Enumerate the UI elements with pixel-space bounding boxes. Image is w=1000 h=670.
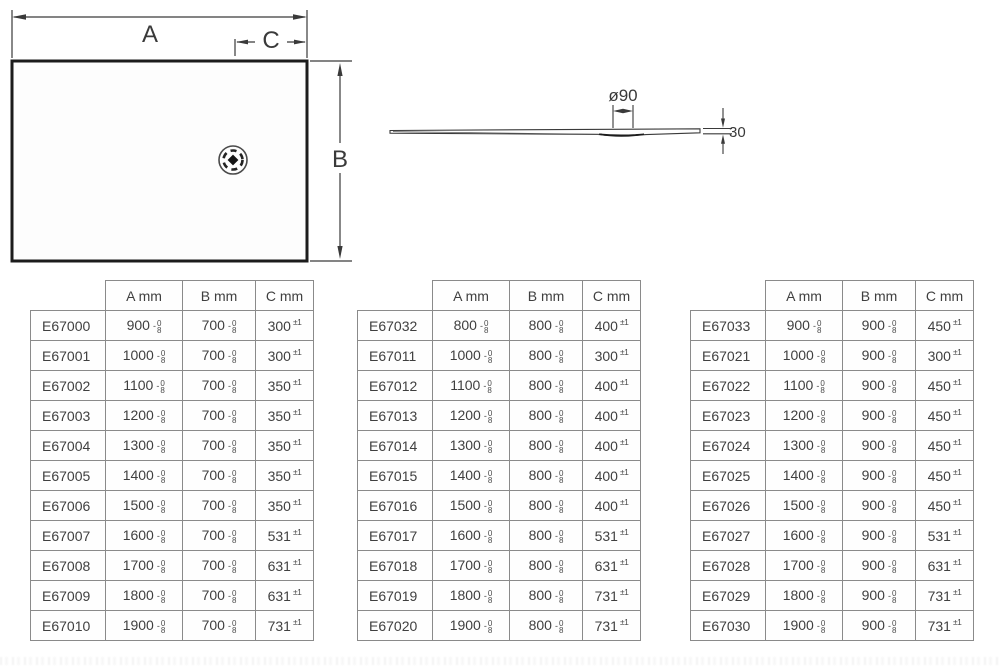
tolerance-ab: -08 [156, 380, 164, 394]
table-row: E670161500-08800-08400±1 [358, 491, 641, 521]
dim-c-cell: 400±1 [583, 431, 641, 461]
dim-c-cell: 450±1 [916, 431, 974, 461]
tolerance-ab: -08 [817, 560, 825, 574]
table-row: E670101900-08700-08731±1 [31, 611, 314, 641]
tolerance-ab: -08 [817, 530, 825, 544]
plan-view-drawing: A C B [0, 0, 370, 270]
table-row: E670031200-08700-08350±1 [31, 401, 314, 431]
tolerance-c: ±1 [293, 587, 301, 597]
dim-c-cell: 300±1 [916, 341, 974, 371]
table-row: E670041300-08700-08350±1 [31, 431, 314, 461]
tolerance-ab: -08 [816, 380, 824, 394]
dim-a-cell: 1500-08 [766, 491, 843, 521]
table-row: E670201900-08800-08731±1 [358, 611, 641, 641]
tolerance-ab: -08 [228, 530, 236, 544]
tolerance-ab: -08 [157, 410, 165, 424]
product-code-cell: E67016 [358, 491, 433, 521]
tolerance-ab: -08 [888, 470, 896, 484]
dim-c-cell: 350±1 [256, 461, 314, 491]
dim-b-cell: 700-08 [183, 431, 256, 461]
tolerance-ab: -08 [228, 560, 236, 574]
dim-b-cell: 900-08 [843, 401, 916, 431]
product-code-cell: E67006 [31, 491, 106, 521]
dim-b-cell: 700-08 [183, 401, 256, 431]
column-header-a: A mm [433, 281, 510, 311]
tolerance-ab: -08 [888, 440, 896, 454]
dim-b-cell: 800-08 [510, 461, 583, 491]
tolerance-c: ±1 [620, 497, 628, 507]
dim-c-cell: 631±1 [256, 581, 314, 611]
dim-b-cell: 900-08 [843, 311, 916, 341]
product-code-cell: E67002 [31, 371, 106, 401]
dim-c-cell: 450±1 [916, 401, 974, 431]
dim-c-cell: 450±1 [916, 371, 974, 401]
column-header-b: B mm [183, 281, 256, 311]
column-header-a: A mm [106, 281, 183, 311]
column-header-a: A mm [766, 281, 843, 311]
tolerance-ab: -08 [888, 560, 896, 574]
tolerance-ab: -08 [228, 380, 236, 394]
tolerance-ab: -08 [817, 410, 825, 424]
header-blank-cell [31, 281, 106, 311]
dim-b-cell: 900-08 [843, 461, 916, 491]
header-blank-cell [358, 281, 433, 311]
column-header-b: B mm [510, 281, 583, 311]
tolerance-ab: -08 [228, 620, 236, 634]
tolerance-c: ±1 [293, 557, 301, 567]
tolerance-ab: -08 [555, 530, 563, 544]
dim-b-cell: 900-08 [843, 371, 916, 401]
dim-b-cell: 700-08 [183, 311, 256, 341]
tolerance-ab: -08 [157, 470, 165, 484]
tolerance-ab: -08 [817, 620, 825, 634]
product-code-cell: E67000 [31, 311, 106, 341]
table-row: E670061500-08700-08350±1 [31, 491, 314, 521]
tolerance-ab: -08 [228, 320, 236, 334]
product-code-cell: E67025 [691, 461, 766, 491]
dim-a-cell: 1400-08 [106, 461, 183, 491]
tolerance-ab: -08 [555, 380, 563, 394]
tolerance-ab: -08 [484, 530, 492, 544]
tolerance-c: ±1 [620, 407, 628, 417]
dim-a-cell: 1600-08 [106, 521, 183, 551]
tolerance-ab: -08 [228, 350, 236, 364]
tolerance-c: ±1 [293, 437, 301, 447]
arrow-up-icon [721, 135, 725, 144]
table-row: E670181700-08800-08631±1 [358, 551, 641, 581]
dim-a-cell: 1500-08 [106, 491, 183, 521]
tolerance-c: ±1 [620, 377, 628, 387]
tolerance-ab: -08 [817, 350, 825, 364]
dim-a-cell: 1200-08 [106, 401, 183, 431]
dim-a-cell: 1500-08 [433, 491, 510, 521]
dim-a-cell: 1300-08 [433, 431, 510, 461]
tray-outline [12, 61, 307, 261]
dim-c-cell: 731±1 [256, 611, 314, 641]
dimension-diameter [613, 105, 633, 128]
table-row: E67032800-08800-08400±1 [358, 311, 641, 341]
table-row: E670301900-08900-08731±1 [691, 611, 974, 641]
spec-table-900-series: A mmB mmC mmE67033900-08900-08450±1E6702… [690, 280, 974, 641]
tolerance-ab: -08 [817, 470, 825, 484]
tolerance-c: ±1 [953, 557, 961, 567]
dim-a-cell: 1000-08 [766, 341, 843, 371]
tolerance-c: ±1 [620, 317, 628, 327]
dim-a-cell: 1700-08 [766, 551, 843, 581]
dim-c-cell: 400±1 [583, 491, 641, 521]
dim-a-cell: 1600-08 [766, 521, 843, 551]
dimension-c-label: C [262, 27, 279, 54]
tolerance-ab: -08 [484, 620, 492, 634]
product-code-cell: E67023 [691, 401, 766, 431]
table-row: E67000900-08700-08300±1 [31, 311, 314, 341]
table-row: E670011000-08700-08300±1 [31, 341, 314, 371]
product-code-cell: E67020 [358, 611, 433, 641]
product-code-cell: E67033 [691, 311, 766, 341]
dim-c-cell: 400±1 [583, 461, 641, 491]
dim-b-cell: 700-08 [183, 371, 256, 401]
dim-b-cell: 900-08 [843, 341, 916, 371]
table-row: E670091800-08700-08631±1 [31, 581, 314, 611]
tolerance-c: ±1 [620, 617, 628, 627]
tolerance-c: ±1 [620, 347, 628, 357]
product-code-cell: E67030 [691, 611, 766, 641]
arrow-left-icon [236, 40, 248, 45]
tolerance-ab: -08 [484, 560, 492, 574]
dim-c-cell: 350±1 [256, 431, 314, 461]
product-code-cell: E67032 [358, 311, 433, 341]
dim-a-cell: 1200-08 [433, 401, 510, 431]
dim-a-cell: 1900-08 [106, 611, 183, 641]
table-row: E670291800-08900-08731±1 [691, 581, 974, 611]
tolerance-ab: -08 [555, 320, 563, 334]
dim-c-cell: 400±1 [583, 311, 641, 341]
tolerance-ab: -08 [157, 590, 165, 604]
dim-a-cell: 1100-08 [766, 371, 843, 401]
dim-a-cell: 1600-08 [433, 521, 510, 551]
tolerance-c: ±1 [953, 587, 961, 597]
table-row: E670131200-08800-08400±1 [358, 401, 641, 431]
dimension-b-label: B [332, 146, 348, 173]
tolerance-c: ±1 [953, 497, 961, 507]
tolerance-ab: -08 [888, 410, 896, 424]
product-code-cell: E67008 [31, 551, 106, 581]
tolerance-ab: -08 [484, 440, 492, 454]
tolerance-ab: -08 [555, 560, 563, 574]
dim-c-cell: 631±1 [256, 551, 314, 581]
tolerance-c: ±1 [293, 407, 301, 417]
dim-b-cell: 800-08 [510, 431, 583, 461]
table-row: E670231200-08900-08450±1 [691, 401, 974, 431]
dim-c-cell: 350±1 [256, 401, 314, 431]
table-row: E670211000-08900-08300±1 [691, 341, 974, 371]
dim-b-cell: 800-08 [510, 521, 583, 551]
dim-c-cell: 531±1 [916, 521, 974, 551]
tolerance-ab: -08 [555, 500, 563, 514]
tolerance-ab: -08 [888, 590, 896, 604]
dim-b-cell: 800-08 [510, 311, 583, 341]
dim-b-cell: 800-08 [510, 341, 583, 371]
dim-c-cell: 400±1 [583, 401, 641, 431]
dim-a-cell: 1300-08 [766, 431, 843, 461]
product-code-cell: E67001 [31, 341, 106, 371]
arrow-up-icon [337, 63, 342, 76]
dim-b-cell: 800-08 [510, 491, 583, 521]
product-code-cell: E67011 [358, 341, 433, 371]
tolerance-ab: -08 [484, 500, 492, 514]
dim-b-cell: 700-08 [183, 521, 256, 551]
dim-a-cell: 1900-08 [433, 611, 510, 641]
tolerance-ab: -08 [555, 410, 563, 424]
dim-a-cell: 1800-08 [106, 581, 183, 611]
product-code-cell: E67005 [31, 461, 106, 491]
dim-c-cell: 531±1 [583, 521, 641, 551]
dim-a-cell: 1800-08 [766, 581, 843, 611]
header-blank-cell [691, 281, 766, 311]
dim-a-cell: 900-08 [766, 311, 843, 341]
arrow-right-icon [294, 40, 306, 45]
tolerance-ab: -08 [817, 440, 825, 454]
table-row: E670021100-08700-08350±1 [31, 371, 314, 401]
product-code-cell: E67028 [691, 551, 766, 581]
profile-view-drawing: ø90 30 [380, 60, 790, 180]
tolerance-ab: -08 [157, 530, 165, 544]
tolerance-c: ±1 [953, 347, 961, 357]
product-code-cell: E67012 [358, 371, 433, 401]
tolerance-ab: -08 [484, 590, 492, 604]
tolerance-ab: -08 [157, 620, 165, 634]
dim-c-cell: 300±1 [256, 341, 314, 371]
product-code-cell: E67022 [691, 371, 766, 401]
tolerance-ab: -08 [228, 500, 236, 514]
table-row: E670251400-08900-08450±1 [691, 461, 974, 491]
arrow-left-icon [613, 109, 623, 113]
tolerance-c: ±1 [953, 527, 961, 537]
dim-a-cell: 800-08 [433, 311, 510, 341]
column-header-c: C mm [583, 281, 641, 311]
dim-c-cell: 531±1 [256, 521, 314, 551]
dim-a-cell: 1800-08 [433, 581, 510, 611]
tolerance-c: ±1 [293, 317, 301, 327]
tolerance-ab: -08 [888, 380, 896, 394]
product-code-cell: E67018 [358, 551, 433, 581]
spec-table-700-series: A mmB mmC mmE67000900-08700-08300±1E6700… [30, 280, 314, 641]
table-row: E670121100-08800-08400±1 [358, 371, 641, 401]
product-code-cell: E67015 [358, 461, 433, 491]
table-row: E670241300-08900-08450±1 [691, 431, 974, 461]
tolerance-ab: -08 [555, 620, 563, 634]
column-header-b: B mm [843, 281, 916, 311]
table-row: E670261500-08900-08450±1 [691, 491, 974, 521]
dim-a-cell: 1700-08 [433, 551, 510, 581]
dim-a-cell: 1100-08 [433, 371, 510, 401]
dim-c-cell: 450±1 [916, 461, 974, 491]
dim-b-cell: 800-08 [510, 551, 583, 581]
table-row: E670141300-08800-08400±1 [358, 431, 641, 461]
dim-b-cell: 700-08 [183, 551, 256, 581]
arrow-right-icon [623, 109, 633, 113]
dim-a-cell: 900-08 [106, 311, 183, 341]
spec-table-800-series: A mmB mmC mmE67032800-08800-08400±1E6701… [357, 280, 641, 641]
dim-c-cell: 400±1 [583, 371, 641, 401]
product-code-cell: E67014 [358, 431, 433, 461]
product-code-cell: E67026 [691, 491, 766, 521]
dim-c-cell: 731±1 [583, 581, 641, 611]
dim-c-cell: 300±1 [256, 311, 314, 341]
dim-b-cell: 700-08 [183, 581, 256, 611]
dim-c-cell: 731±1 [916, 581, 974, 611]
tolerance-c: ±1 [953, 437, 961, 447]
dim-c-cell: 300±1 [583, 341, 641, 371]
product-code-cell: E67017 [358, 521, 433, 551]
dim-b-cell: 900-08 [843, 581, 916, 611]
table-row: E670221100-08900-08450±1 [691, 371, 974, 401]
dim-a-cell: 1400-08 [766, 461, 843, 491]
dim-b-cell: 700-08 [183, 341, 256, 371]
table-row: E670191800-08800-08731±1 [358, 581, 641, 611]
tolerance-c: ±1 [620, 587, 628, 597]
dim-b-cell: 900-08 [843, 491, 916, 521]
tolerance-c: ±1 [293, 497, 301, 507]
dim-b-cell: 800-08 [510, 401, 583, 431]
thickness-label: 30 [729, 124, 746, 141]
tolerance-ab: -08 [157, 500, 165, 514]
dim-b-cell: 700-08 [183, 491, 256, 521]
tolerance-c: ±1 [620, 437, 628, 447]
tolerance-c: ±1 [293, 617, 301, 627]
tolerance-c: ±1 [953, 467, 961, 477]
product-code-cell: E67019 [358, 581, 433, 611]
tolerance-ab: -08 [555, 470, 563, 484]
table-row: E670081700-08700-08631±1 [31, 551, 314, 581]
cropped-text-artifact [0, 657, 1000, 665]
tolerance-ab: -08 [484, 350, 492, 364]
table-row: E670151400-08800-08400±1 [358, 461, 641, 491]
tolerance-ab: -08 [480, 320, 488, 334]
dim-a-cell: 1400-08 [433, 461, 510, 491]
tolerance-ab: -08 [228, 410, 236, 424]
tolerance-ab: -08 [813, 320, 821, 334]
dim-a-cell: 1000-08 [106, 341, 183, 371]
tolerance-ab: -08 [483, 380, 491, 394]
table-row: E670271600-08900-08531±1 [691, 521, 974, 551]
tolerance-c: ±1 [293, 347, 301, 357]
tolerance-ab: -08 [555, 350, 563, 364]
tolerance-ab: -08 [157, 350, 165, 364]
table-row: E670171600-08800-08531±1 [358, 521, 641, 551]
product-code-cell: E67021 [691, 341, 766, 371]
dim-a-cell: 1200-08 [766, 401, 843, 431]
dim-c-cell: 450±1 [916, 311, 974, 341]
dim-c-cell: 450±1 [916, 491, 974, 521]
dim-a-cell: 1900-08 [766, 611, 843, 641]
tolerance-ab: -08 [888, 530, 896, 544]
dim-b-cell: 800-08 [510, 611, 583, 641]
dim-a-cell: 1300-08 [106, 431, 183, 461]
dimension-a-label: A [142, 21, 158, 48]
tolerance-ab: -08 [157, 560, 165, 574]
tolerance-c: ±1 [953, 407, 961, 417]
dim-c-cell: 731±1 [583, 611, 641, 641]
tolerance-ab: -08 [484, 470, 492, 484]
dim-b-cell: 800-08 [510, 581, 583, 611]
tolerance-ab: -08 [228, 590, 236, 604]
dim-c-cell: 350±1 [256, 491, 314, 521]
product-code-cell: E67027 [691, 521, 766, 551]
dim-c-cell: 731±1 [916, 611, 974, 641]
arrow-down-icon [721, 119, 725, 128]
tolerance-ab: -08 [888, 620, 896, 634]
table-row: E670071600-08700-08531±1 [31, 521, 314, 551]
dim-b-cell: 900-08 [843, 551, 916, 581]
dim-b-cell: 900-08 [843, 431, 916, 461]
dim-c-cell: 350±1 [256, 371, 314, 401]
product-code-cell: E67029 [691, 581, 766, 611]
product-code-cell: E67010 [31, 611, 106, 641]
tolerance-ab: -08 [888, 500, 896, 514]
tolerance-c: ±1 [620, 527, 628, 537]
dim-b-cell: 800-08 [510, 371, 583, 401]
table-row: E670111000-08800-08300±1 [358, 341, 641, 371]
dim-a-cell: 1700-08 [106, 551, 183, 581]
table-row: E67033900-08900-08450±1 [691, 311, 974, 341]
dim-b-cell: 700-08 [183, 611, 256, 641]
tolerance-ab: -08 [555, 590, 563, 604]
tolerance-c: ±1 [953, 617, 961, 627]
arrow-left-icon [12, 14, 26, 20]
dim-b-cell: 900-08 [843, 521, 916, 551]
product-code-cell: E67004 [31, 431, 106, 461]
tolerance-ab: -08 [228, 470, 236, 484]
tolerance-c: ±1 [953, 377, 961, 387]
diameter-label: ø90 [608, 86, 637, 105]
dim-c-cell: 631±1 [583, 551, 641, 581]
tolerance-ab: -08 [555, 440, 563, 454]
tolerance-c: ±1 [620, 467, 628, 477]
product-code-cell: E67007 [31, 521, 106, 551]
arrow-down-icon [337, 246, 342, 259]
dimension-thickness [703, 108, 732, 154]
dim-a-cell: 1000-08 [433, 341, 510, 371]
tolerance-c: ±1 [293, 527, 301, 537]
tolerance-ab: -08 [888, 320, 896, 334]
table-row: E670051400-08700-08350±1 [31, 461, 314, 491]
dim-c-cell: 631±1 [916, 551, 974, 581]
tolerance-c: ±1 [953, 317, 961, 327]
tolerance-ab: -08 [888, 350, 896, 364]
tolerance-ab: -08 [817, 590, 825, 604]
tolerance-ab: -08 [157, 440, 165, 454]
column-header-c: C mm [916, 281, 974, 311]
tolerance-c: ±1 [620, 557, 628, 567]
table-row: E670281700-08900-08631±1 [691, 551, 974, 581]
tolerance-c: ±1 [293, 467, 301, 477]
product-code-cell: E67024 [691, 431, 766, 461]
tolerance-c: ±1 [293, 377, 301, 387]
product-code-cell: E67013 [358, 401, 433, 431]
dim-b-cell: 700-08 [183, 461, 256, 491]
column-header-c: C mm [256, 281, 314, 311]
dim-b-cell: 900-08 [843, 611, 916, 641]
tolerance-ab: -08 [228, 440, 236, 454]
tolerance-ab: -08 [484, 410, 492, 424]
product-code-cell: E67009 [31, 581, 106, 611]
tolerance-ab: -08 [817, 500, 825, 514]
tolerance-ab: -08 [153, 320, 161, 334]
dim-a-cell: 1100-08 [106, 371, 183, 401]
arrow-right-icon [293, 14, 307, 20]
product-code-cell: E67003 [31, 401, 106, 431]
